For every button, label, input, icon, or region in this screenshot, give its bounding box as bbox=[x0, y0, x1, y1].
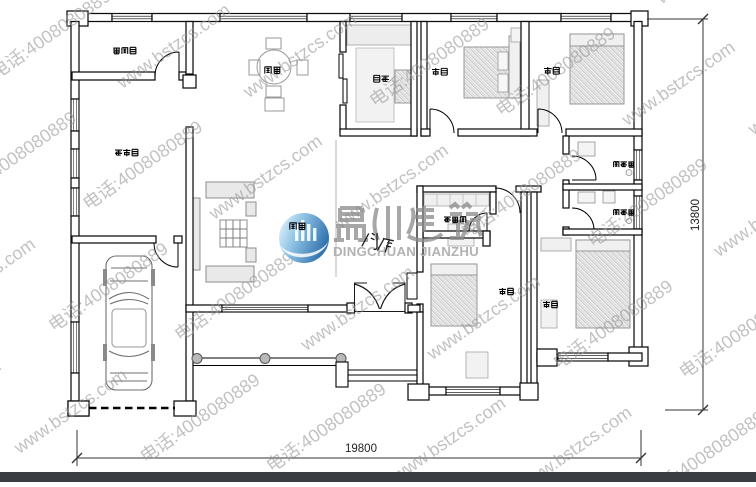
svg-text:13800: 13800 bbox=[690, 199, 702, 231]
svg-text:DINGCHUAN JIANZHU: DINGCHUAN JIANZHU bbox=[333, 244, 479, 259]
svg-text:19800: 19800 bbox=[345, 443, 377, 455]
